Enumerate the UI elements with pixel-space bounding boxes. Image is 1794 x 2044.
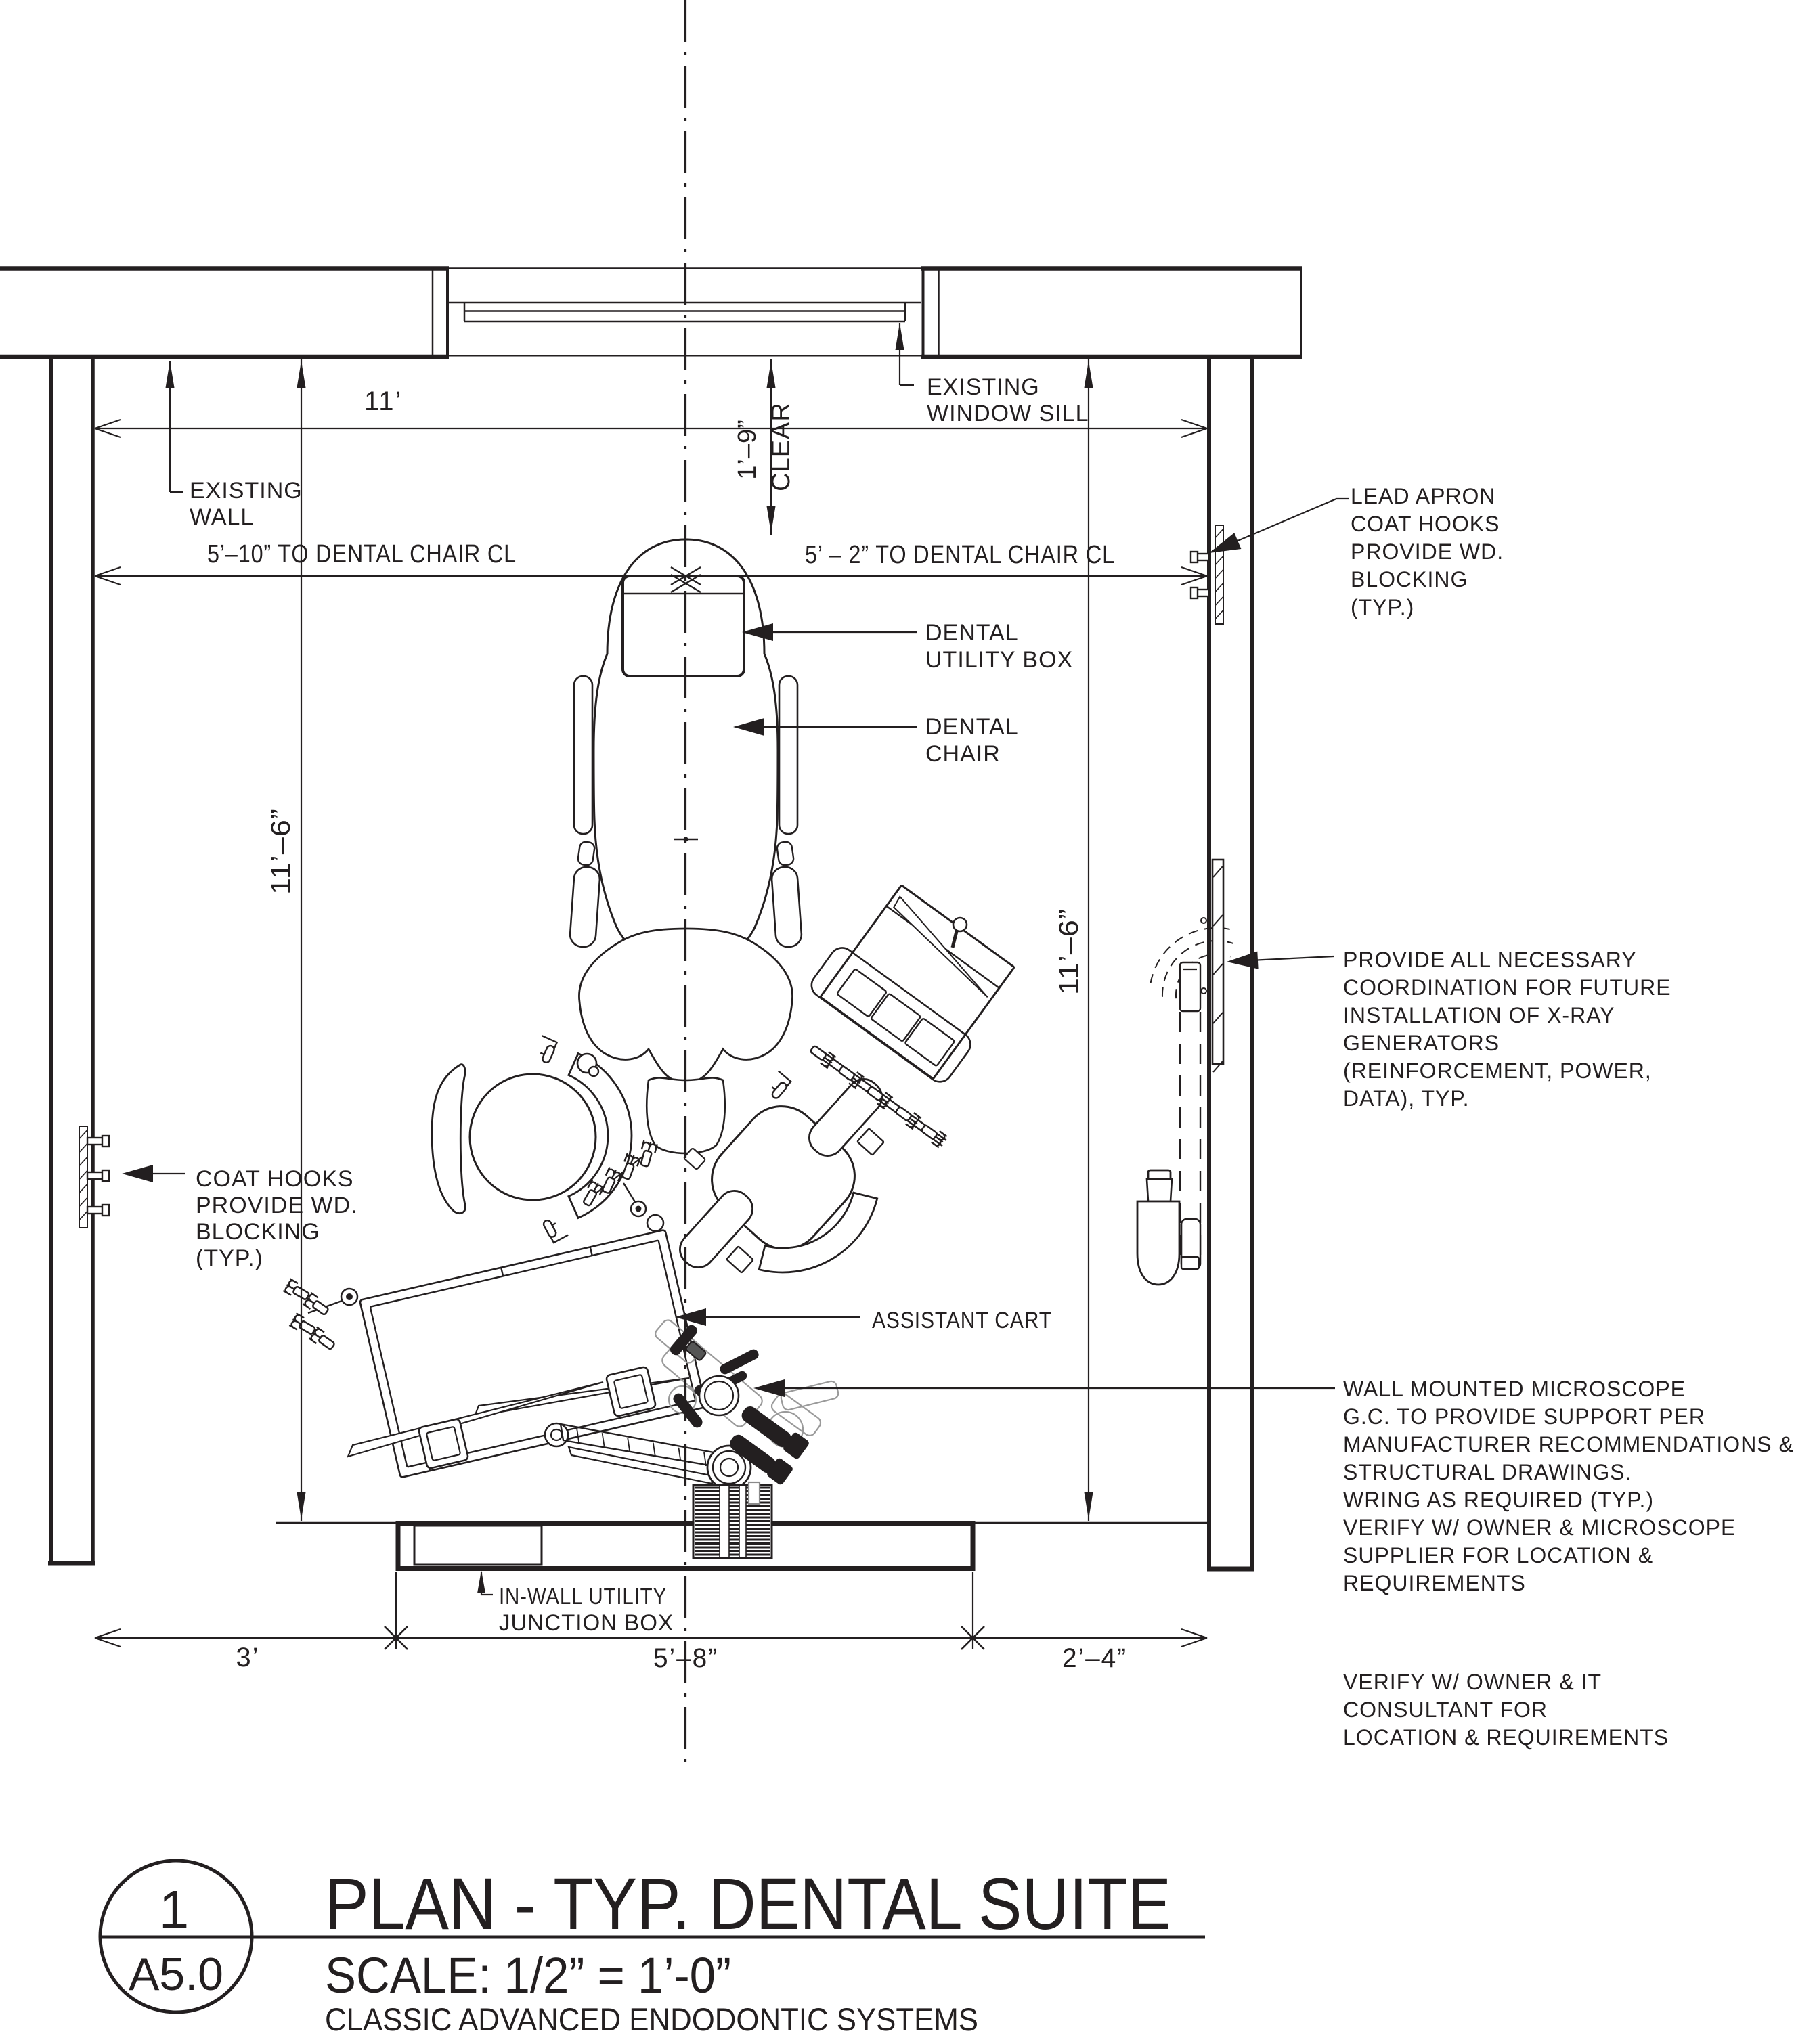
svg-text:G.C. TO PROVIDE SUPPORT PER: G.C. TO PROVIDE SUPPORT PER: [1343, 1404, 1705, 1429]
svg-text:SUPPLIER FOR LOCATION &: SUPPLIER FOR LOCATION &: [1343, 1543, 1653, 1568]
svg-text:WALL: WALL: [190, 504, 254, 530]
svg-text:BLOCKING: BLOCKING: [1351, 567, 1468, 592]
svg-text:EXISTING: EXISTING: [927, 374, 1040, 400]
svg-text:INSTALLATION OF X-RAY: INSTALLATION OF X-RAY: [1343, 1003, 1615, 1027]
svg-text:1: 1: [159, 1880, 190, 1940]
svg-text:3’: 3’: [236, 1643, 259, 1672]
svg-text:PLAN - TYP. DENTAL SUITE: PLAN - TYP. DENTAL SUITE: [325, 1863, 1171, 1945]
svg-text:UTILITY BOX: UTILITY BOX: [925, 647, 1073, 673]
svg-text:5’–10” TO DENTAL CHAIR CL: 5’–10” TO DENTAL CHAIR CL: [207, 540, 517, 569]
svg-text:(TYP.): (TYP.): [1351, 595, 1414, 619]
svg-text:CONSULTANT FOR: CONSULTANT FOR: [1343, 1697, 1548, 1722]
svg-text:1’–9”: 1’–9”: [733, 419, 762, 480]
svg-text:CLASSIC ADVANCED ENDODONTIC SY: CLASSIC ADVANCED ENDODONTIC SYSTEMS: [325, 2001, 978, 2037]
svg-text:IN-WALL UTILITY: IN-WALL UTILITY: [499, 1584, 667, 1609]
svg-text:LEAD APRON: LEAD APRON: [1351, 484, 1496, 508]
svg-text:11’: 11’: [364, 386, 402, 416]
svg-text:GENERATORS: GENERATORS: [1343, 1031, 1500, 1055]
svg-text:STRUCTURAL DRAWINGS.: STRUCTURAL DRAWINGS.: [1343, 1460, 1632, 1484]
svg-text:REQUIREMENTS: REQUIREMENTS: [1343, 1571, 1526, 1595]
svg-text:JUNCTION BOX: JUNCTION BOX: [499, 1610, 674, 1636]
svg-text:(REINFORCEMENT, POWER,: (REINFORCEMENT, POWER,: [1343, 1059, 1652, 1083]
svg-text:(TYP.): (TYP.): [196, 1245, 263, 1271]
svg-text:5’ – 2” TO DENTAL CHAIR CL: 5’ – 2” TO DENTAL CHAIR CL: [805, 541, 1115, 569]
svg-text:COAT HOOKS: COAT HOOKS: [1351, 512, 1500, 536]
svg-text:BLOCKING: BLOCKING: [196, 1219, 320, 1245]
svg-text:WALL MOUNTED MICROSCOPE: WALL MOUNTED MICROSCOPE: [1343, 1377, 1686, 1401]
svg-text:CLEAR: CLEAR: [767, 402, 795, 491]
svg-text:CHAIR: CHAIR: [925, 741, 1001, 767]
svg-text:DENTAL: DENTAL: [925, 714, 1019, 740]
svg-text:LOCATION & REQUIREMENTS: LOCATION & REQUIREMENTS: [1343, 1725, 1669, 1750]
svg-text:PROVIDE ALL NECESSARY: PROVIDE ALL NECESSARY: [1343, 948, 1637, 972]
svg-text:WINDOW SILL: WINDOW SILL: [927, 401, 1089, 426]
svg-text:2’–4”: 2’–4”: [1062, 1643, 1127, 1673]
svg-text:SCALE: 1/2” = 1’-0”: SCALE: 1/2” = 1’-0”: [325, 1947, 731, 2003]
svg-text:VERIFY W/ OWNER & IT: VERIFY W/ OWNER & IT: [1343, 1670, 1602, 1694]
svg-text:11’–6”: 11’–6”: [266, 808, 296, 895]
svg-text:MANUFACTURER RECOMMENDATIONS &: MANUFACTURER RECOMMENDATIONS &: [1343, 1432, 1794, 1457]
svg-text:PROVIDE WD.: PROVIDE WD.: [1351, 539, 1504, 564]
svg-text:EXISTING: EXISTING: [190, 478, 303, 504]
svg-text:5’–8”: 5’–8”: [653, 1643, 718, 1673]
svg-text:DENTAL: DENTAL: [925, 620, 1019, 646]
svg-text:COAT HOOKS: COAT HOOKS: [196, 1166, 354, 1192]
svg-text:VERIFY W/ OWNER & MICROSCOPE: VERIFY W/ OWNER & MICROSCOPE: [1343, 1515, 1736, 1540]
svg-text:11’–6”: 11’–6”: [1054, 908, 1084, 995]
svg-text:A5.0: A5.0: [129, 1949, 223, 2000]
svg-text:DATA), TYP.: DATA), TYP.: [1343, 1086, 1469, 1111]
svg-text:ASSISTANT CART: ASSISTANT CART: [872, 1308, 1052, 1333]
svg-text:WRING AS REQUIRED (TYP.): WRING AS REQUIRED (TYP.): [1343, 1488, 1654, 1512]
svg-text:PROVIDE WD.: PROVIDE WD.: [196, 1193, 358, 1218]
svg-text:COORDINATION FOR FUTURE: COORDINATION FOR FUTURE: [1343, 975, 1671, 1000]
